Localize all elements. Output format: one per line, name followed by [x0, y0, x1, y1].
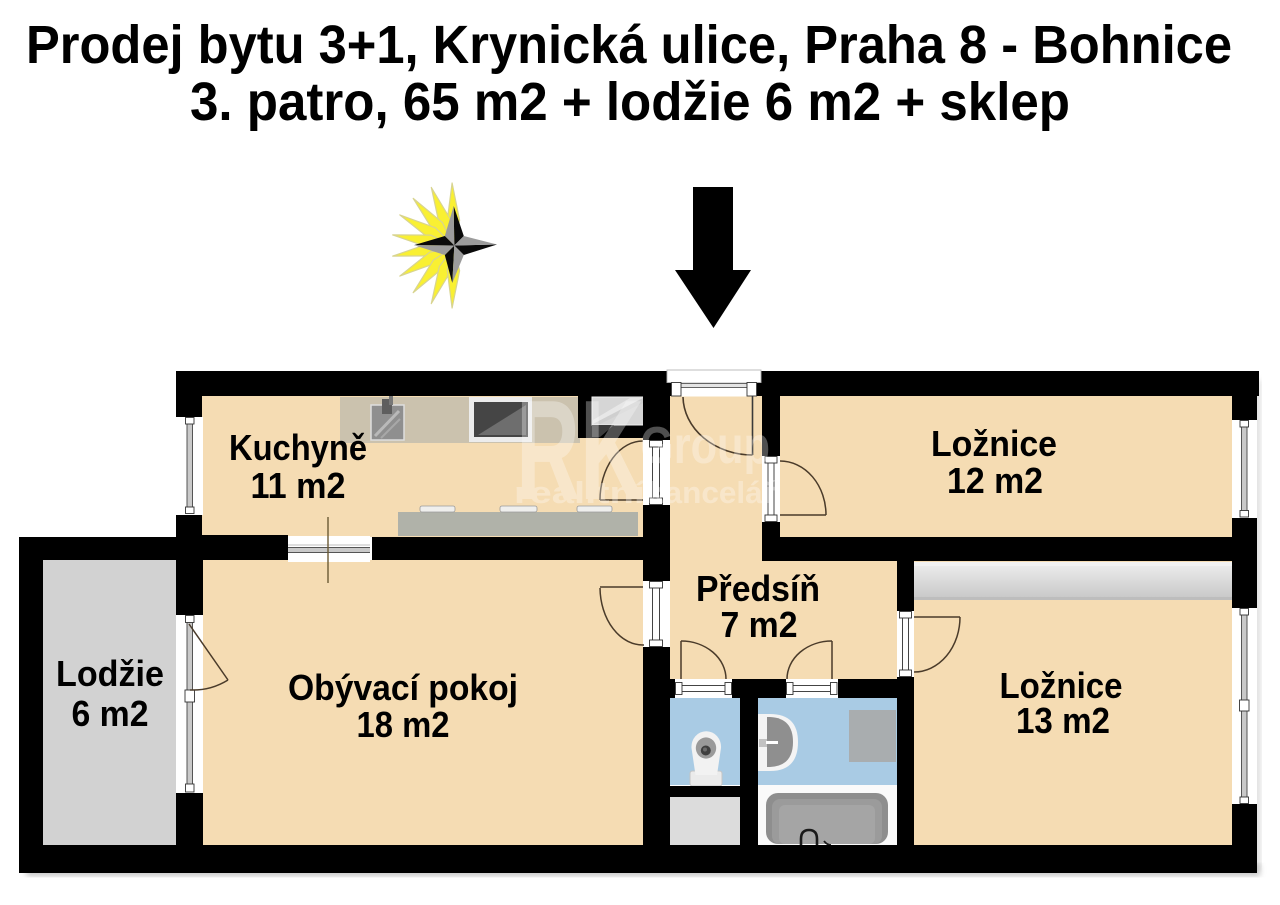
svg-text:kancelář: kancelář [647, 475, 775, 510]
svg-text:Group: Group [640, 417, 770, 475]
svg-text:Obývací pokoj: Obývací pokoj [288, 667, 518, 708]
svg-text:Prodej bytu 3+1, Krynická ulic: Prodej bytu 3+1, Krynická ulice, Praha 8… [26, 15, 1232, 75]
svg-text:realitní: realitní [514, 475, 647, 510]
svg-text:7 m2: 7 m2 [721, 604, 798, 645]
svg-text:11 m2: 11 m2 [251, 465, 346, 506]
svg-text:18 m2: 18 m2 [357, 704, 450, 745]
svg-text:6 m2: 6 m2 [72, 693, 149, 734]
svg-text:12 m2: 12 m2 [947, 460, 1043, 501]
svg-text:13 m2: 13 m2 [1016, 700, 1110, 741]
svg-text:Předsíň: Předsíň [696, 568, 820, 609]
svg-text:Lodžie: Lodžie [56, 653, 164, 694]
svg-text:3. patro, 65 m2 + lodžie 6 m2: 3. patro, 65 m2 + lodžie 6 m2 + sklep [190, 72, 1070, 132]
svg-text:Ložnice: Ložnice [931, 423, 1057, 464]
svg-text:Kuchyně: Kuchyně [229, 427, 367, 468]
